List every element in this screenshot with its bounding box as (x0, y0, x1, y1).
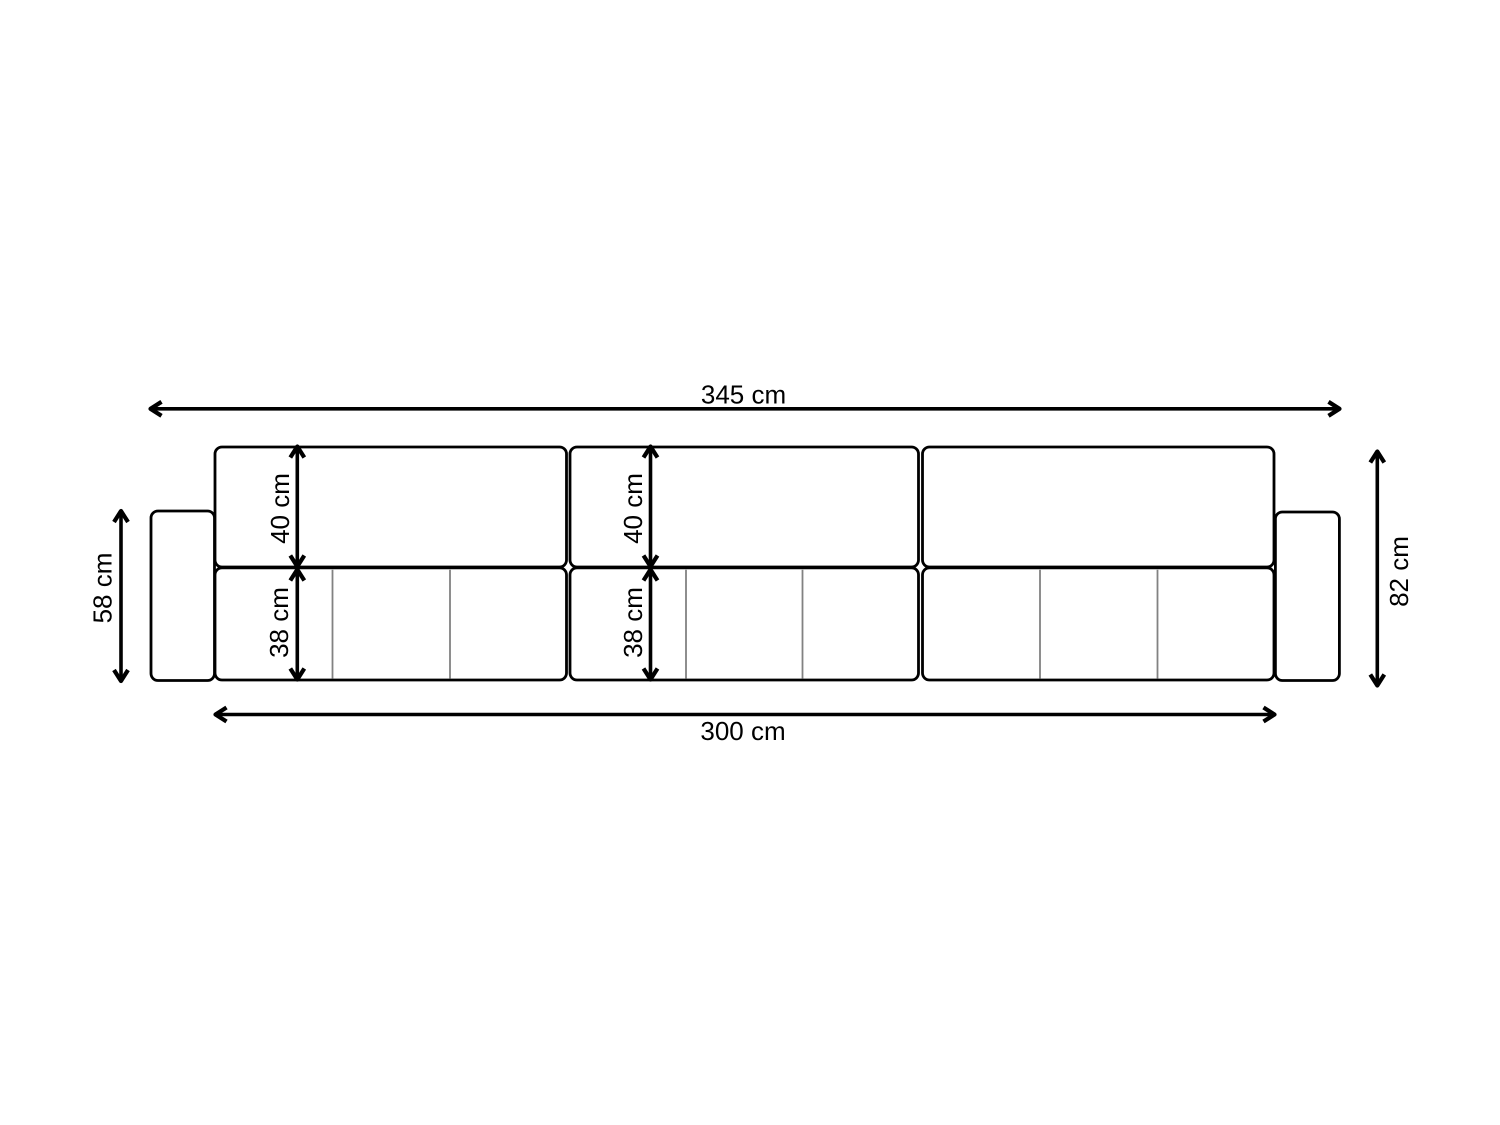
svg-text:38 cm: 38 cm (618, 587, 648, 658)
svg-text:38 cm: 38 cm (264, 587, 294, 658)
svg-text:82 cm: 82 cm (1384, 536, 1414, 607)
svg-text:300 cm: 300 cm (700, 716, 785, 746)
svg-text:40 cm: 40 cm (618, 473, 648, 544)
svg-text:58 cm: 58 cm (88, 553, 118, 624)
svg-text:345 cm: 345 cm (701, 380, 786, 410)
svg-text:40 cm: 40 cm (265, 473, 295, 544)
